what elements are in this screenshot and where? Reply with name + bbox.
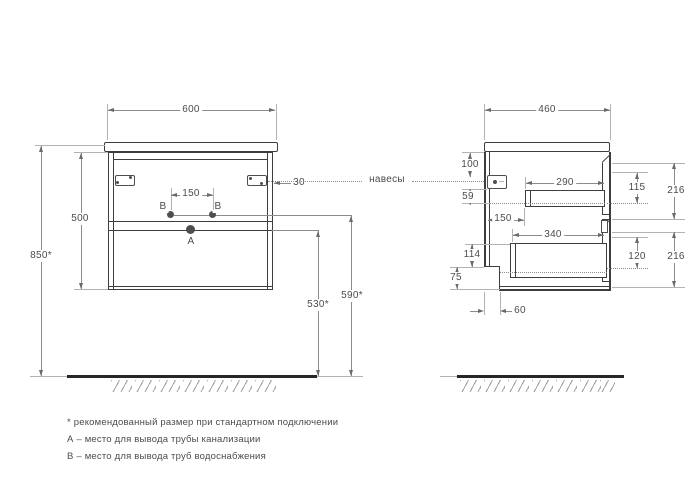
extension-line (450, 289, 500, 290)
right-hinge-dot (260, 182, 263, 185)
arrowhead (79, 153, 83, 159)
hangers-leader-line (412, 181, 486, 182)
wall-hanger-slot (499, 181, 504, 182)
mount-height-label: 850* (28, 250, 54, 262)
wall-hanger-dot (493, 180, 497, 184)
hanger-top-offset-label: 100 (459, 159, 481, 171)
hinge-offset-label: 30 (291, 177, 307, 189)
arrowhead (39, 146, 43, 152)
footnote-point-b: В – место для вывода труб водоснабжения (67, 451, 266, 462)
arrowhead (672, 163, 676, 169)
side-bottom-inner (499, 286, 611, 287)
floor-hatch-mark (183, 380, 204, 392)
floor-line (67, 375, 317, 378)
floor-hatch-mark (556, 380, 577, 392)
plinth-depth-label: 60 (512, 305, 528, 317)
arrowhead (79, 283, 83, 289)
back-clearance-label: 150 (492, 213, 514, 225)
drain-outlet-point (186, 225, 195, 234)
left-hinge-dot (129, 176, 132, 179)
arrowhead (526, 181, 532, 185)
drawer-front-bottom-edge (602, 281, 610, 282)
arrowhead (316, 231, 320, 237)
hangers-leader-line (268, 181, 362, 182)
right-hinge-dot (249, 177, 252, 180)
front-width-label: 600 (180, 104, 202, 116)
bottom-drawer-inner-height-label: 120 (626, 251, 648, 263)
extension-line (524, 208, 525, 226)
extension-line (612, 219, 685, 220)
arrowhead (672, 232, 676, 238)
top-drawer-box (525, 190, 605, 207)
arrowhead (207, 193, 213, 197)
floor-extension-line (317, 376, 363, 377)
arrowhead (470, 261, 474, 267)
top-drawer-inner-height-label: 115 (627, 182, 648, 194)
extension-line (612, 172, 648, 173)
side-countertop (484, 142, 610, 152)
arrowhead (672, 213, 676, 219)
floor-extension-line (440, 376, 457, 377)
floor-hatch-mark (255, 380, 276, 392)
floor-hatch-mark (111, 380, 132, 392)
floor-hatch-mark (532, 380, 553, 392)
floor-hatch-mark (600, 380, 615, 392)
drawer-gap-line (602, 214, 610, 215)
top-drawer-slide-line (490, 203, 605, 204)
bottom-drawer-slide-line (500, 272, 607, 273)
point-a-label: A (186, 236, 197, 248)
point-b-right-label: B (213, 201, 224, 213)
front-height-label: 500 (69, 213, 91, 225)
floor-hatch-mark (484, 380, 505, 392)
arrowhead (478, 309, 484, 313)
bottom-front-height-label: 216 (665, 251, 687, 263)
extension-line (213, 188, 214, 210)
wall-hanger-icon (487, 175, 507, 189)
arrowhead (598, 181, 604, 185)
side-back-wall-inner (489, 152, 490, 267)
extension-line-dotted (607, 268, 648, 269)
hanger-drop-label: 59 (460, 191, 476, 203)
extension-line (462, 152, 484, 153)
arrowhead (485, 108, 491, 112)
arrowhead (108, 108, 114, 112)
dimension-line (506, 311, 512, 312)
extension-line (35, 145, 105, 146)
front-countertop (104, 142, 278, 152)
side-depth-label: 460 (536, 104, 558, 116)
arrowhead (513, 233, 519, 237)
bottom-drawer-depth-label: 340 (542, 229, 564, 241)
floor-hatch-mark (207, 380, 228, 392)
floor-hatch-mark (508, 380, 529, 392)
extension-line-dotted (607, 203, 648, 204)
top-drawer-depth-label: 290 (554, 177, 576, 189)
drain-height-label: 530* (305, 299, 331, 311)
side-back-wall-outer (484, 152, 486, 267)
extension-line (74, 289, 108, 290)
front-bottom-inner-line (109, 286, 272, 287)
arrowhead (269, 108, 275, 112)
arrowhead (672, 281, 676, 287)
drawer-slide-bracket (601, 220, 608, 233)
floor-hatch-mark (135, 380, 156, 392)
arrowhead (171, 193, 177, 197)
arrowhead (635, 173, 639, 179)
arrowhead (635, 237, 639, 243)
floor-hatch-mark (159, 380, 180, 392)
top-front-height-label: 216 (665, 185, 687, 197)
extension-line (462, 203, 490, 204)
floor-hatch-mark (460, 380, 481, 392)
side-bottom-outer (499, 289, 611, 291)
arrowhead (518, 218, 524, 222)
extension-line (462, 189, 487, 190)
front-drawer-gap-line-top (109, 221, 272, 222)
arrowhead (598, 233, 604, 237)
left-hinge-dot (116, 181, 119, 184)
arrowhead (349, 216, 353, 222)
point-b-left-label: B (158, 201, 169, 213)
plinth-height-label: 75 (448, 272, 464, 284)
hangers-label: навесы (367, 174, 407, 186)
floor-line (457, 375, 624, 378)
arrowhead (468, 171, 472, 177)
footnote-recommended-size: * рекомендованный размер при стандартном… (67, 417, 338, 428)
outlet-spacing-label: 150 (180, 188, 202, 200)
bottom-clearance-label: 114 (462, 249, 483, 261)
extension-line (276, 104, 277, 140)
water-level-reference-line (174, 215, 352, 216)
water-height-label: 590* (339, 290, 365, 302)
drain-level-reference-line (272, 230, 319, 231)
extension-line (171, 188, 172, 210)
extension-line (612, 287, 685, 288)
technical-drawing-canvas: B B A 600 500 850* 150 30 (0, 0, 696, 500)
arrowhead (635, 197, 639, 203)
extension-line (484, 292, 485, 315)
footnote-point-a: А – место для вывода трубы канализации (67, 434, 260, 445)
floor-hatch-mark (231, 380, 252, 392)
floor-hatch-mark (580, 380, 601, 392)
arrowhead (604, 108, 610, 112)
extension-line (612, 237, 648, 238)
front-top-rail-line (114, 159, 267, 160)
extension-line (610, 104, 611, 140)
side-plinth-notch-top (484, 266, 500, 267)
floor-extension-line (30, 376, 67, 377)
